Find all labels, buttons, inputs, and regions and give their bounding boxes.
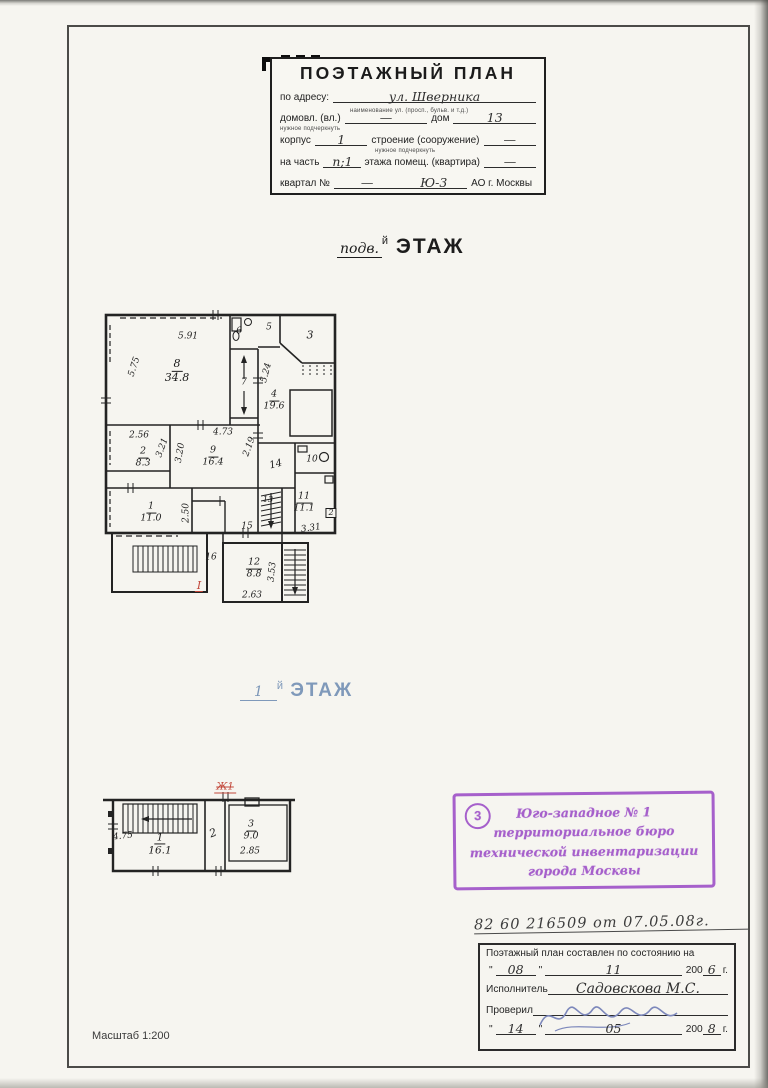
registry-box-title: Поэтажный план составлен по состоянию на — [486, 948, 728, 959]
room-label: 39.0 — [243, 820, 258, 843]
survey-year-prefix: 200 — [682, 965, 703, 976]
dim-label: 2.85 — [240, 848, 260, 857]
room-number: 13 — [263, 496, 273, 504]
stamp-line-2: территориальное бюро — [456, 821, 712, 843]
room-label: 834.8 — [165, 358, 190, 384]
document-title: ПОЭТАЖНЫЙ ПЛАН — [280, 63, 536, 84]
basement-floor-title: подв.й ЭТАЖ — [337, 235, 465, 259]
stamp-line-1: Юго-западное № 1 — [456, 802, 712, 824]
stamp-line-3: технической инвентаризации — [456, 840, 712, 862]
check-year-digit: 8 — [703, 1024, 721, 1035]
bti-stamp: 3 Юго-западное № 1 территориальное бюро … — [452, 791, 715, 891]
room-label: 419.6 — [263, 390, 284, 413]
dim-label: 2.56 — [129, 432, 149, 441]
room-label: 128.8 — [246, 558, 262, 581]
check-month: 05 — [545, 1024, 681, 1035]
room-number: 3 — [307, 330, 314, 341]
dim-label: 2.50 — [183, 503, 192, 523]
first-floor-plan: 116.1 39.0 2 4.75 2.85 Ж1 — [95, 778, 320, 898]
room-label: 116.1 — [148, 831, 171, 856]
stamp-line-4: города Москвы — [456, 860, 712, 882]
check-year-prefix: 200 — [682, 1024, 703, 1035]
check-date-row: " 14 " 05 200 8 г. — [486, 1024, 728, 1035]
first-floor-suffix: й — [277, 680, 283, 692]
entrance-marker: 2 — [325, 508, 336, 518]
check-day: 14 — [496, 1024, 536, 1035]
address-label: по адресу: — [280, 92, 333, 103]
survey-day: 08 — [496, 965, 536, 976]
address-value: ул. Шверника — [333, 92, 536, 103]
dom-label: дом — [427, 113, 453, 124]
room-number: 6 — [236, 328, 242, 337]
survey-year-digit: 6 — [703, 965, 721, 976]
domovl-label: домовл. (вл.) — [280, 113, 345, 124]
part-row: на часть п;1 этажа помещ. (квартира) — — [280, 157, 536, 168]
first-floor-title: 1й ЭТАЖ — [240, 680, 353, 702]
scan-edge-right — [754, 0, 768, 1088]
kvartal-row: квартал № — Ю-3 АО г. Москвы — [280, 178, 536, 189]
registry-box: Поэтажный план составлен по состоянию на… — [478, 943, 736, 1051]
dom-value: 13 — [453, 113, 536, 124]
room-label: 28.3 — [135, 447, 150, 470]
basement-floor-suffix: й — [382, 235, 388, 247]
executor-row: Исполнитель Садовскова М.С. — [486, 984, 728, 995]
scale-label: Масштаб 1:200 — [92, 1030, 170, 1042]
stamp-number-circle: 3 — [465, 803, 491, 829]
year-suffix-2: г. — [721, 1024, 728, 1035]
checker-signature-line — [533, 1004, 728, 1016]
checker-label: Проверил — [486, 1005, 533, 1016]
pomesh-label: этажа помещ. (квартира) — [361, 157, 484, 168]
dim-label: 2.63 — [242, 592, 262, 601]
building-row: корпус 1 строение (сооружение) — нужное … — [280, 135, 536, 146]
year-suffix: г. — [721, 965, 728, 976]
survey-month: 11 — [545, 965, 681, 976]
room-number: 5 — [266, 324, 272, 333]
executor-label: Исполнитель — [486, 984, 548, 995]
red-section-mark: Ж1 — [214, 783, 236, 794]
stroenie-value: — — [484, 135, 537, 146]
room-number: 16 — [205, 554, 216, 563]
room-label: 1111.1 — [293, 492, 314, 515]
basement-floor-handwritten: подв. — [337, 241, 382, 258]
basement-floor-word: ЭТАЖ — [396, 235, 465, 258]
red-section-mark: I — [195, 580, 203, 592]
korpus-label: корпус — [280, 135, 315, 146]
survey-date-row: " 08 " 11 200 6 г. — [486, 965, 728, 976]
room-label: 916.4 — [202, 446, 223, 469]
address-row: по адресу: ул. Шверника наименование ул.… — [280, 92, 536, 103]
first-floor-number: 1 — [240, 684, 277, 701]
scan-edge-bottom — [0, 1078, 768, 1088]
scan-edge-top — [0, 0, 768, 6]
chast-label: на часть — [280, 157, 323, 168]
scan-artifact-dash — [262, 62, 266, 71]
room-label: 111.0 — [140, 502, 161, 525]
chast-value: п;1 — [323, 157, 361, 168]
scanned-floor-plan-document: { "header": { "title": "ПОЭТАЖНЫЙ ПЛАН",… — [0, 0, 768, 1088]
domovl-value: — — [345, 113, 428, 124]
dim-label: 5.91 — [178, 333, 198, 342]
executor-name: Садовскова М.С. — [548, 984, 728, 995]
household-row: домовл. (вл.) — дом 13 нужное подчеркнут… — [280, 113, 536, 124]
city-label: АО г. Москвы — [467, 178, 536, 189]
stroenie-label: строение (сооружение) — [367, 135, 483, 146]
checker-row: Проверил — [486, 1004, 728, 1016]
okrug-value: Ю-3 — [401, 178, 468, 189]
room-number: 15 — [241, 523, 252, 532]
first-floor-word: ЭТАЖ — [290, 680, 353, 701]
basement-plan: 834.8 419.6 28.3 916.4 111.0 1111.1 128.… — [100, 305, 345, 610]
kvartal-value: — — [334, 178, 401, 189]
underline-hint: нужное подчеркнуть — [280, 126, 340, 132]
kvartal-label: квартал № — [280, 178, 334, 189]
underline-hint-2: нужное подчеркнуть — [375, 148, 435, 154]
pomesh-value: — — [484, 157, 536, 168]
dim-label: 4.73 — [213, 429, 233, 438]
room-number: 7 — [241, 379, 247, 388]
room-number: 10 — [306, 456, 317, 465]
header-box: ПОЭТАЖНЫЙ ПЛАН по адресу: ул. Шверника н… — [270, 57, 546, 195]
korpus-value: 1 — [315, 135, 368, 146]
